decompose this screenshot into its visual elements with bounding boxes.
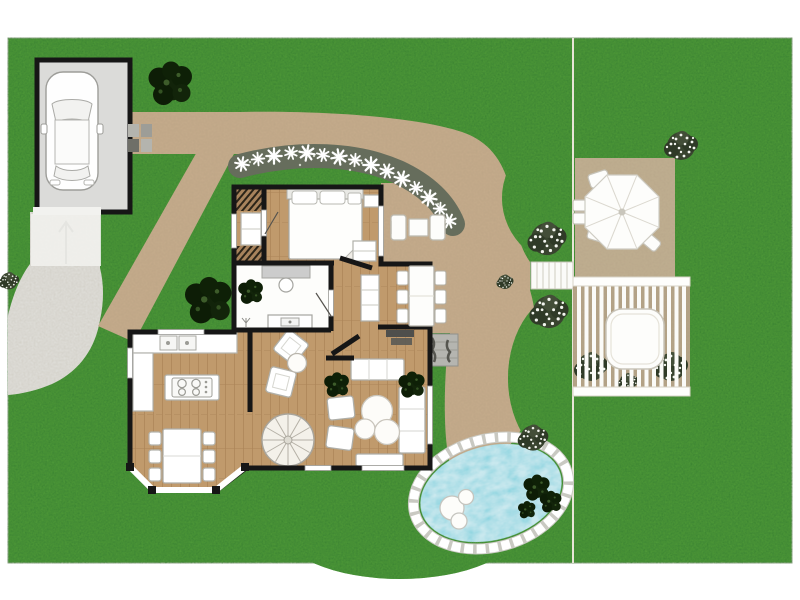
parasol: [585, 175, 659, 249]
spiral-staircase: [262, 414, 314, 466]
closet-slats: [236, 189, 263, 211]
plank-walkway: [531, 262, 573, 289]
garage-door-opening: [33, 207, 101, 215]
armchair: [327, 396, 355, 421]
terrace-lounge-set: [391, 215, 445, 240]
kitchen-counter-left: [133, 353, 153, 411]
nightstand: [364, 195, 379, 207]
garage-apron: [31, 214, 101, 266]
sofa-right: [399, 387, 425, 453]
terrace-dining-set: [397, 266, 446, 326]
vanity: [262, 266, 310, 278]
side-table: [288, 354, 307, 373]
double-bed: [287, 189, 363, 259]
pergola-hot-tub: [573, 277, 690, 396]
sofa-top: [351, 359, 404, 380]
kitchen-island: [165, 375, 219, 400]
tv-console: [386, 330, 414, 337]
bench: [356, 454, 403, 466]
pergola-frame-bottom: [573, 387, 690, 396]
doormat: [391, 338, 412, 345]
pergola-frame-top: [573, 277, 690, 286]
car: [41, 72, 103, 190]
sideboard: [361, 275, 379, 321]
armchair: [326, 425, 355, 450]
bay-dining-set: [149, 429, 215, 483]
site-plan: [0, 0, 800, 600]
vanity-stool: [279, 278, 293, 292]
